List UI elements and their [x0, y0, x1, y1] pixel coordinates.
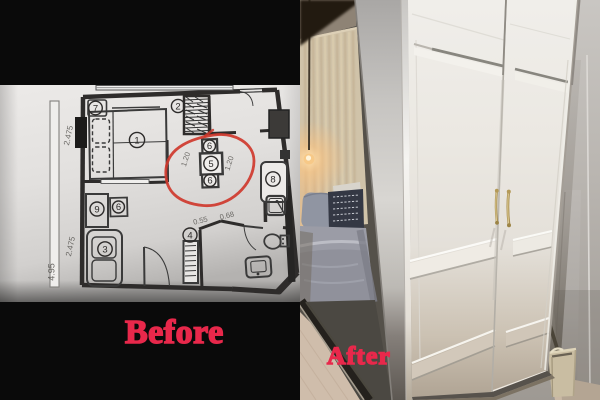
- svg-text:6: 6: [116, 202, 121, 213]
- svg-text:8: 8: [270, 174, 275, 185]
- svg-text:7: 7: [93, 103, 98, 114]
- svg-text:6: 6: [207, 176, 212, 187]
- svg-text:4: 4: [187, 230, 192, 241]
- svg-text:2: 2: [175, 101, 180, 112]
- svg-text:1: 1: [134, 136, 139, 147]
- svg-text:5: 5: [208, 159, 213, 170]
- svg-text:4.95: 4.95: [47, 263, 57, 281]
- svg-text:9: 9: [94, 204, 99, 215]
- svg-text:6: 6: [207, 141, 212, 152]
- svg-text:3: 3: [102, 245, 107, 256]
